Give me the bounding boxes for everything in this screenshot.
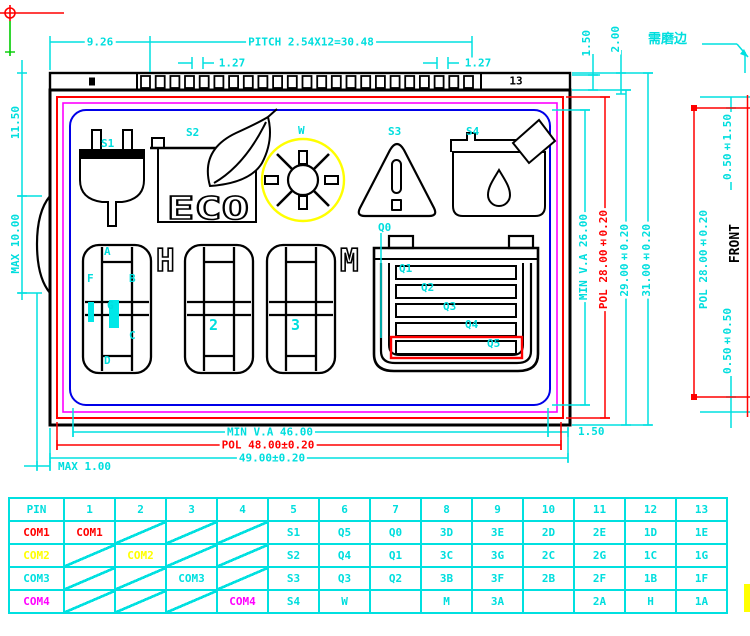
pin-table-cell: COM4	[217, 590, 268, 613]
pin-table-cell: S4	[268, 590, 319, 613]
pin-table-cell	[64, 590, 115, 613]
pin-table-cell: Q5	[319, 521, 370, 544]
dim-bottom-side-gap: 1.50	[578, 426, 605, 437]
pin-table-cell: 2B	[523, 567, 574, 590]
pin-table-cell: COM1	[64, 521, 115, 544]
pin-number-header: 12	[625, 498, 676, 521]
dim-pin1-offset: 9.26	[85, 37, 116, 48]
pin-table-cell: 1E	[676, 521, 727, 544]
pin-table-cell: 3F	[472, 567, 523, 590]
dim-right-pol: POL 28.00±0.20	[598, 208, 609, 311]
pin-table-cell: H	[625, 590, 676, 613]
seg-c-label: C	[129, 330, 136, 341]
pin-table-cell: 3E	[472, 521, 523, 544]
w-label: W	[298, 125, 305, 136]
pin-table-cell: 2A	[574, 590, 625, 613]
pin-table-cell: S1	[268, 521, 319, 544]
battery-bar-label: Q2	[421, 282, 434, 293]
pin-table-cell: 1D	[625, 521, 676, 544]
pin-table-cell: 2F	[574, 567, 625, 590]
dim-right-min-va: MIN V.A 26.00	[578, 212, 589, 302]
warning-triangle-icon	[359, 144, 435, 216]
pin-table-cell	[523, 590, 574, 613]
pin-number-header: 11	[574, 498, 625, 521]
leaf-icon	[208, 117, 270, 186]
digit-3-mark: 3	[291, 318, 300, 333]
right-edge-yellow-mark	[744, 584, 750, 612]
pin-table-cell: Q0	[370, 521, 421, 544]
s3-label: S3	[388, 126, 401, 137]
letter-m-segment: M	[340, 243, 359, 279]
pin-table-cell	[64, 544, 115, 567]
lcd-glass-drawing: ECO	[0, 0, 750, 636]
dim-left-bump: MAX 10.00	[10, 212, 21, 276]
fan-sun-icon	[262, 139, 344, 221]
pin-table-cell	[166, 590, 217, 613]
dim-left-upper: 11.50	[10, 104, 21, 141]
pin-table-cell	[217, 567, 268, 590]
pin-number-header: 3	[166, 498, 217, 521]
pin-table-cell	[115, 567, 166, 590]
seg-f-label: F	[87, 273, 94, 284]
pin-number-header: 1	[64, 498, 115, 521]
pin-table-cell: W	[319, 590, 370, 613]
seg-e-mark	[88, 302, 94, 322]
seven-seg-digit-3	[267, 245, 335, 373]
pin-number-header: 13	[676, 498, 727, 521]
pin-table-cell: 1F	[676, 567, 727, 590]
battery-bar-label: Q5	[487, 338, 500, 349]
pin-number-header: 9	[472, 498, 523, 521]
pin-table-cell: 3A	[472, 590, 523, 613]
pin-assignment-table: PIN12345678910111213COM1COM1S1Q5Q03D3E2D…	[8, 497, 728, 614]
eco-text: ECO	[167, 191, 249, 227]
pin-table-cell	[64, 567, 115, 590]
s2-label: S2	[186, 127, 199, 138]
s1-label: S1	[101, 138, 114, 149]
q0-label: Q0	[378, 222, 391, 233]
pin-table-cell: Q3	[319, 567, 370, 590]
seg-b-label: B	[129, 273, 136, 284]
sideview-front-label: FRONT	[729, 222, 742, 265]
pin-number-header: 10	[523, 498, 574, 521]
dim-bottom-bump-out: MAX 1.00	[58, 461, 111, 472]
pin-table-cell: 3G	[472, 544, 523, 567]
pin-table-cell: S3	[268, 567, 319, 590]
dim-ledge: 2.00	[610, 24, 621, 55]
pin-table-cell	[115, 590, 166, 613]
pin-table-cell: 1G	[676, 544, 727, 567]
pin-table-cell	[166, 544, 217, 567]
pin-table-cell: 1B	[625, 567, 676, 590]
pin-number-header: 6	[319, 498, 370, 521]
sideview-pol-dim: POL 28.00±0.20	[698, 208, 709, 311]
pin-table-cell: 2G	[574, 544, 625, 567]
pin-table-cell: S2	[268, 544, 319, 567]
letter-h-segment: H	[156, 243, 175, 279]
dim-half-pitch-left: 1.27	[217, 58, 248, 69]
pin-table-cell: 2D	[523, 521, 574, 544]
origin-marker-icon	[0, 5, 64, 56]
pin-number-header: 2	[115, 498, 166, 521]
com-row-label: COM3	[9, 567, 64, 590]
pin-table-cell: Q2	[370, 567, 421, 590]
dim-bottom-pol: POL 48.00±0.20	[220, 440, 317, 451]
pin-number-header: 8	[421, 498, 472, 521]
seven-seg-digit-2	[185, 245, 253, 373]
sideview-top-offset: 0.50±1.50	[722, 112, 733, 182]
pin-table-cell	[370, 590, 421, 613]
pin-number-header: 5	[268, 498, 319, 521]
glass-bump	[37, 196, 50, 293]
seg-a-label: A	[104, 246, 111, 257]
pin-table-cell: 2E	[574, 521, 625, 544]
pin-table-cell	[115, 521, 166, 544]
battery-bar-label: Q4	[465, 319, 478, 330]
seg-g-label: G	[107, 300, 114, 311]
connector-pads	[141, 76, 473, 88]
pin-table-cell: COM2	[115, 544, 166, 567]
dim-right-inner: 29.00±0.20	[619, 222, 630, 299]
pin-table-header: PIN	[9, 498, 64, 521]
pin-table-cell: 1C	[625, 544, 676, 567]
battery-bar-label: Q3	[443, 301, 456, 312]
pin-table-cell: Q4	[319, 544, 370, 567]
dim-right-glass: 31.00±0.20	[641, 222, 652, 299]
dim-bottom-min-va: MIN V.A 46.00	[225, 427, 315, 438]
pin-table-cell: 3C	[421, 544, 472, 567]
pad-13-label: 13	[507, 76, 524, 87]
com-row-label: COM1	[9, 521, 64, 544]
com-row-label: COM4	[9, 590, 64, 613]
pin-table-cell	[217, 521, 268, 544]
pin1-marker	[89, 78, 95, 86]
pin-number-header: 7	[370, 498, 421, 521]
pin-table-cell: COM3	[166, 567, 217, 590]
dim-pitch: PITCH 2.54X12=30.48	[246, 37, 376, 48]
grind-edge-note: 需磨边	[648, 33, 687, 46]
pin-table-cell: 1A	[676, 590, 727, 613]
seg-d-label: D	[104, 355, 111, 366]
com-row-label: COM2	[9, 544, 64, 567]
pin-table-cell	[217, 544, 268, 567]
dim-half-pitch-right: 1.27	[463, 58, 494, 69]
s4-label: S4	[466, 126, 479, 137]
pin-number-header: 4	[217, 498, 268, 521]
pin-table-cell: 3B	[421, 567, 472, 590]
pin-table-cell: Q1	[370, 544, 421, 567]
sideview-bottom-offset: 0.50±0.50	[722, 306, 733, 376]
pin-table-cell: M	[421, 590, 472, 613]
pin-table-cell	[166, 521, 217, 544]
dim-bottom-glass: 49.00±0.20	[237, 453, 307, 464]
battery-bar-label: Q1	[399, 263, 412, 274]
digit-2-mark: 2	[209, 318, 218, 333]
dim-pad-height: 1.50	[581, 28, 592, 59]
pin-table-cell: 2C	[523, 544, 574, 567]
pin-table-cell: 3D	[421, 521, 472, 544]
